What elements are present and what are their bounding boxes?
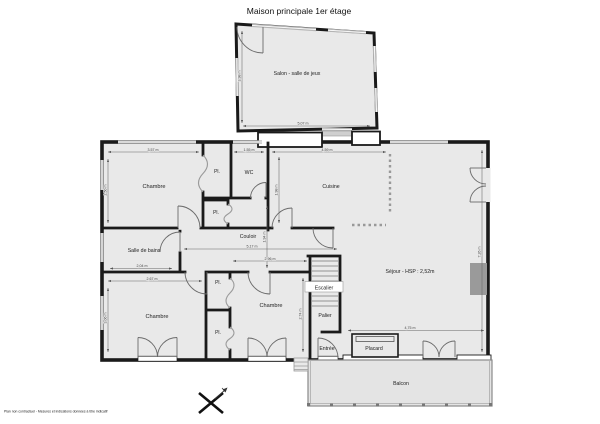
disclaimer-note: Plan non contractuel - Mesures et indica… [4,410,108,414]
dim-wc-width: 1,55 m [244,148,255,152]
dim-cuisine-width: 4,59 m [322,148,333,152]
dim-chambre-bl-height: 3,06 m [104,313,108,324]
entry-decks [258,131,380,147]
exterior-steps [294,358,308,371]
entree-label: Entrée [319,346,334,352]
palier-label: Palier [318,313,332,319]
sejour-label: Séjour - HSP : 2,52m [386,269,435,275]
dim-chambre-tl-width: 3,57 m [148,148,159,152]
pl1-label: Pl. [214,169,220,175]
dim-chambre-br-height: 2,74 m [299,309,303,320]
cuisine-label: Cuisine [322,184,339,190]
escalier-label: Escalier [315,286,334,292]
gap [179,226,200,229]
salon-building: Salon - salle de jeux [236,24,377,131]
couloir-label: Couloir [240,234,257,240]
pl4-label: Pl. [215,330,221,336]
chambre-tl-label: Chambre [142,184,165,190]
dim-couloir-height: 1,94 m [263,232,267,243]
pl3-label: Pl. [215,280,221,286]
chambre-br-label: Chambre [259,303,282,309]
dim-sdb-width: 2,04 m [137,264,148,268]
dim-chambre-bl-width: 2,67 m [147,277,158,281]
step-slab [322,131,352,136]
gap [252,197,265,200]
fireplace [470,263,487,295]
dim-salon-width: 5,07 m [298,122,309,126]
dim-sejour-height: 7,26 m [478,247,482,258]
floor-plan-page: Maison principale 1er étage Salon - sall… [0,0,600,424]
dim-chambre-tl-height: 2,50 m [104,185,108,196]
dim-couloir-width: 5,17 m [247,245,258,249]
salle-de-bains-label: Salle de bains [128,248,161,254]
pl2-label: Pl. [213,210,219,216]
floor-plan-drawing: Maison principale 1er étage Salon - sall… [0,0,600,424]
gap [485,168,491,202]
chambre-bl-label: Chambre [145,314,168,320]
wc-label: WC [245,170,254,176]
dim-chambre-br-width: 2,96 m [265,257,276,261]
balcon-label: Balcon [393,381,409,387]
placard-label: Placard [365,346,383,352]
dim-salon-height: 3,98 m [238,71,242,82]
dim-sejour-width: 4,75 m [405,326,416,330]
plan-title: Maison principale 1er étage [247,6,352,16]
salon-label: Salon - salle de jeux [274,71,321,77]
deck-right [352,132,380,146]
dim-cuisine-height: 1,98 m [275,185,279,196]
